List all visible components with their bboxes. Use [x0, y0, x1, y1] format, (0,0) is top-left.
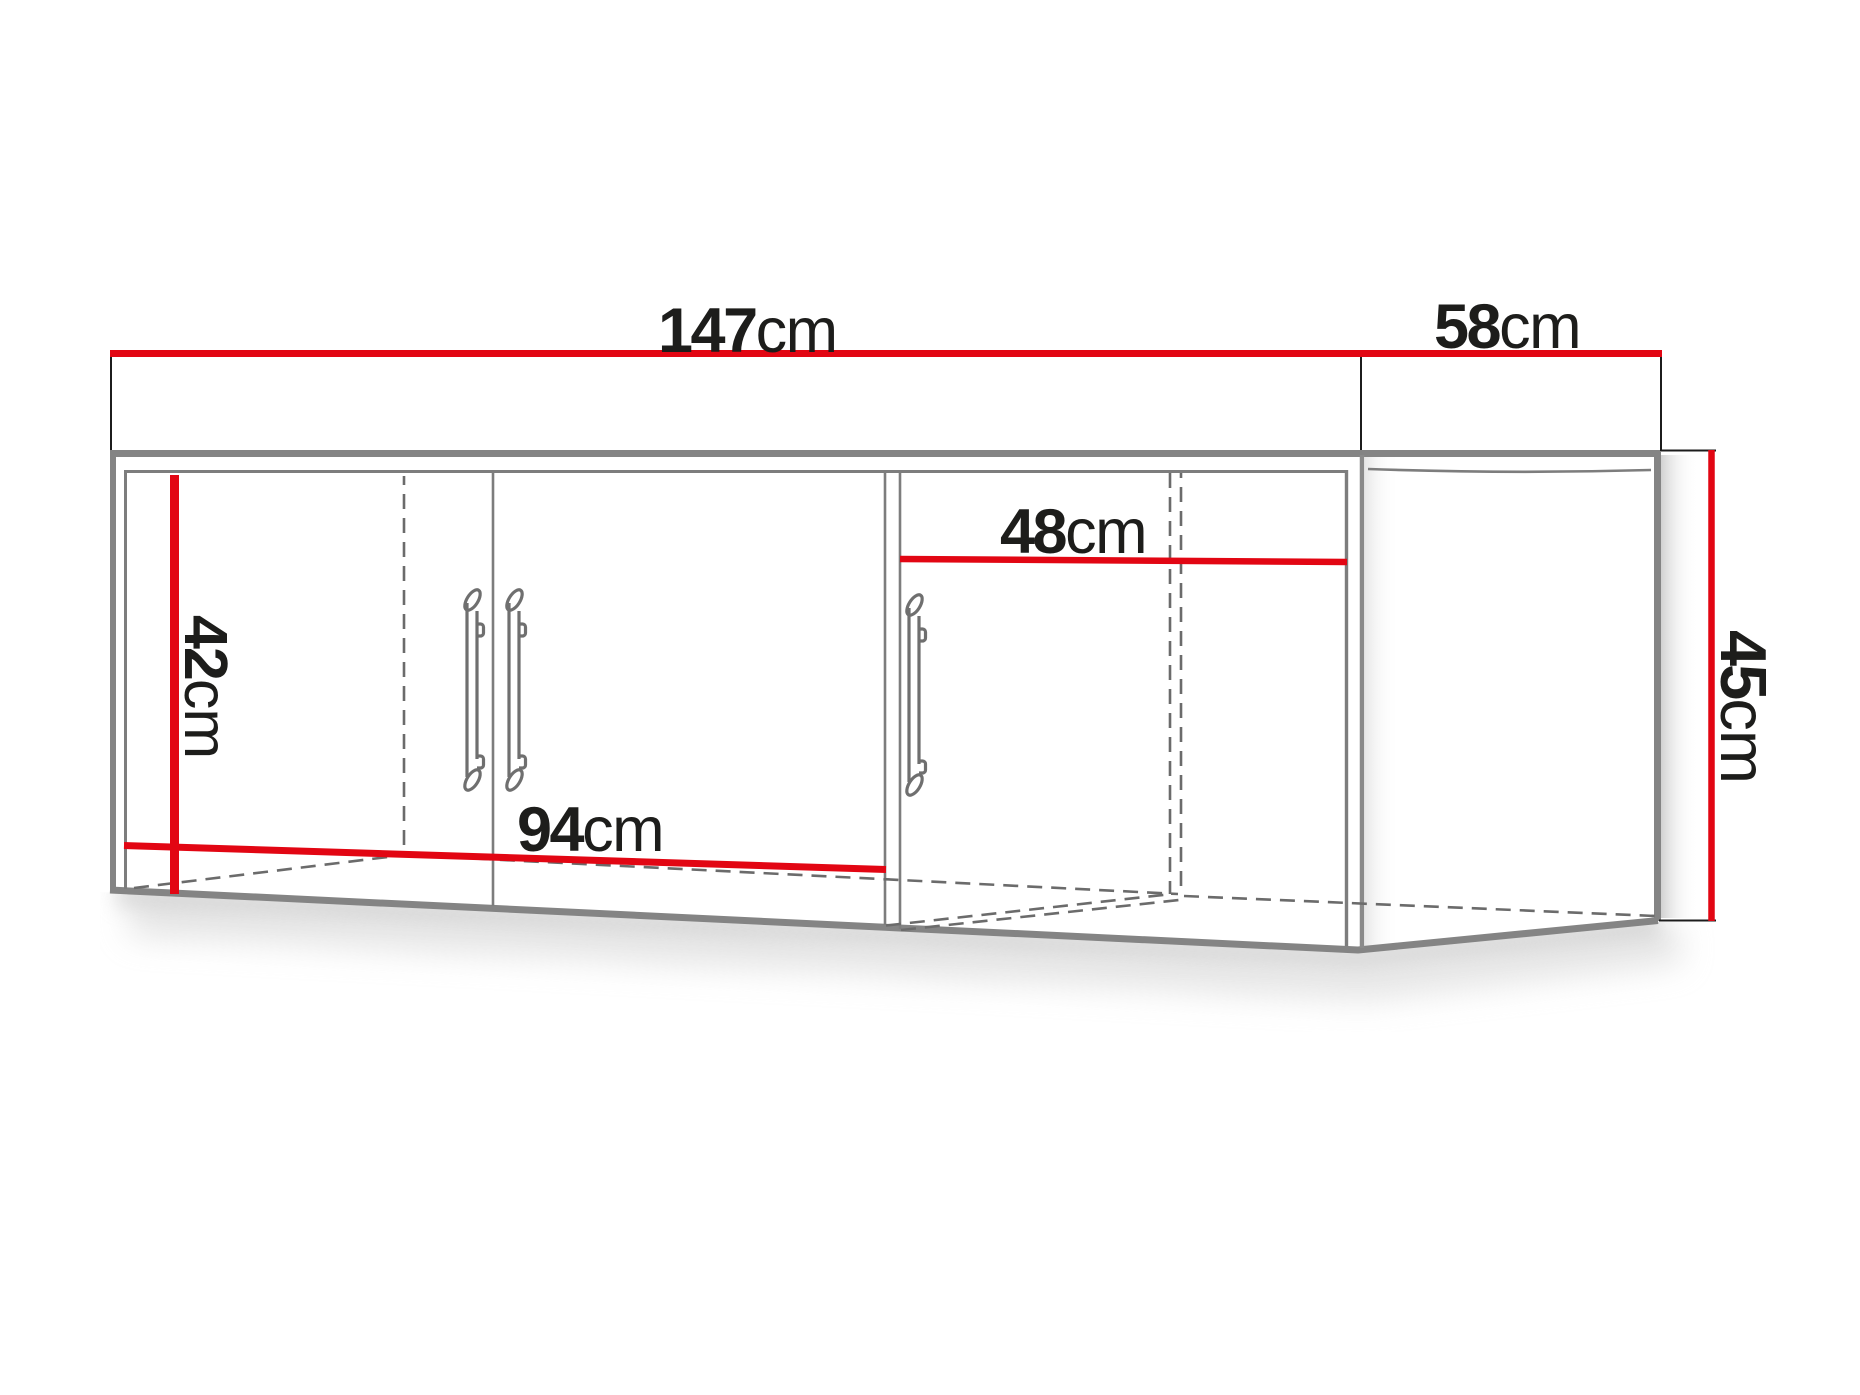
svg-text:147cm: 147cm	[658, 296, 837, 366]
svg-text:45cm: 45cm	[1707, 630, 1780, 783]
svg-text:48cm: 48cm	[1000, 497, 1146, 567]
svg-text:42cm: 42cm	[172, 615, 240, 758]
svg-text:58cm: 58cm	[1434, 292, 1580, 362]
svg-text:94cm: 94cm	[517, 795, 663, 865]
